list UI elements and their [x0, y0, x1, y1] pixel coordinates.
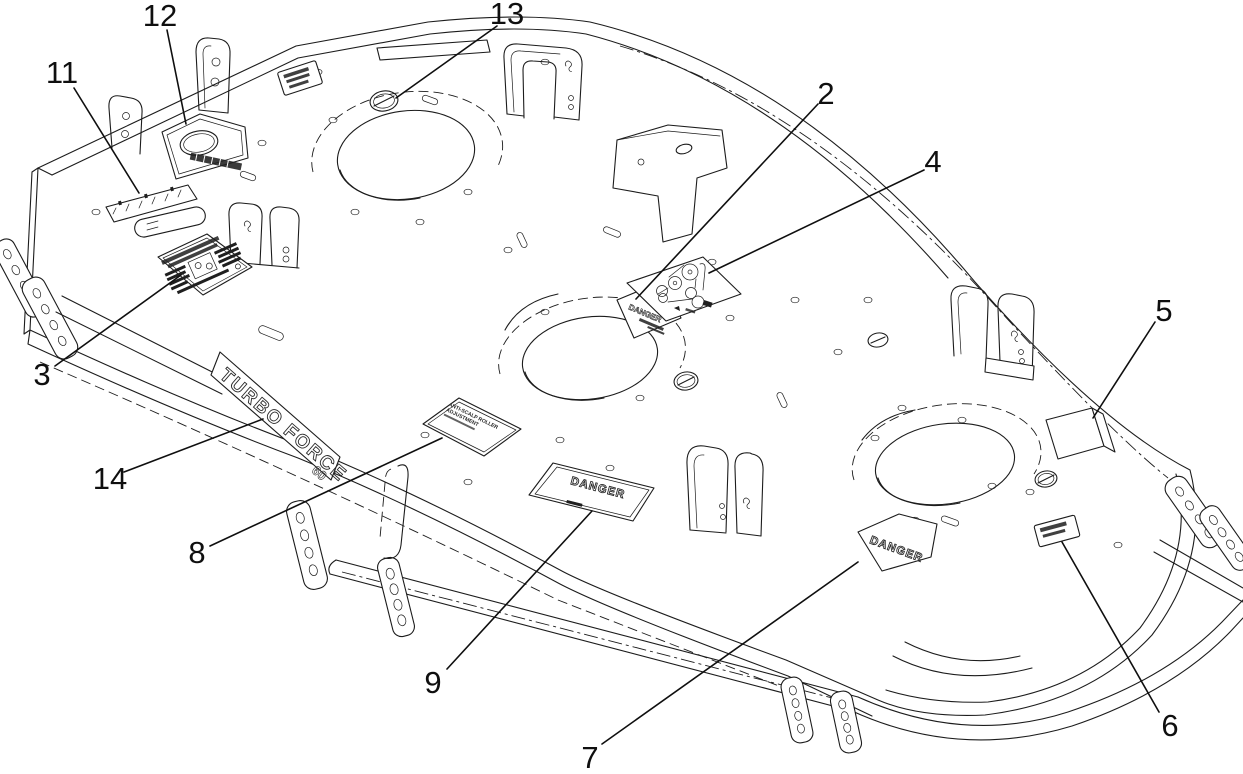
callout-label-11: 11: [46, 55, 78, 90]
parts-diagram-canvas: TURBO FORCE 60 ANTI-SCALP ROLLER ADJUSTM…: [0, 0, 1243, 774]
front-tube-cap: [329, 560, 336, 574]
callout-label-2: 2: [817, 76, 834, 111]
callout-label-14: 14: [93, 461, 127, 496]
callout-label-3: 3: [33, 357, 50, 392]
callout-label-9: 9: [424, 665, 441, 700]
hanger-plates-bottom-left: [284, 465, 416, 639]
callout-label-12: 12: [143, 0, 177, 33]
skirt-left-cap: [28, 330, 30, 344]
callout-label-4: 4: [924, 144, 941, 179]
leader-line-14: [124, 419, 263, 472]
leader-line-5: [1093, 322, 1155, 418]
callout-label-8: 8: [188, 535, 205, 570]
callout-5: 5: [1093, 293, 1173, 418]
callout-label-13: 13: [490, 0, 524, 31]
callout-14: 14: [93, 419, 263, 496]
mower-deck-diagram: TURBO FORCE 60 ANTI-SCALP ROLLER ADJUSTM…: [0, 0, 1243, 774]
callout-label-5: 5: [1155, 293, 1172, 328]
callout-label-7: 7: [581, 740, 598, 774]
callout-label-6: 6: [1161, 708, 1178, 743]
